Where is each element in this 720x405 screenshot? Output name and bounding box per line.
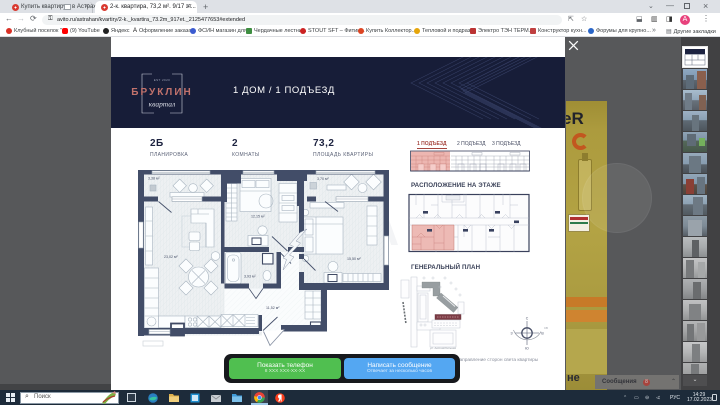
- svg-text:С: С: [526, 317, 529, 321]
- svg-text:В: В: [541, 332, 544, 336]
- svg-text:3,38 м²: 3,38 м²: [148, 177, 160, 181]
- svg-text:СВ: СВ: [544, 326, 548, 330]
- svg-text:квартал: квартал: [149, 100, 176, 109]
- svg-text:3,70 м²: 3,70 м²: [317, 177, 329, 181]
- svg-text:БРУКЛИН: БРУКЛИН: [131, 87, 192, 98]
- svg-text:Ю: Ю: [525, 347, 529, 351]
- svg-text:EST 2020: EST 2020: [154, 78, 171, 82]
- svg-text:3,93 м²: 3,93 м²: [244, 275, 256, 279]
- svg-text:З: З: [510, 332, 512, 336]
- svg-text:12,15 м²: 12,15 м²: [251, 215, 265, 219]
- svg-text:23,02 м²: 23,02 м²: [164, 255, 178, 259]
- svg-text:11,52 м²: 11,52 м²: [266, 306, 280, 310]
- svg-text:ул. Автомобильная: ул. Автомобильная: [429, 346, 456, 350]
- svg-text:15,50 м²: 15,50 м²: [347, 257, 361, 261]
